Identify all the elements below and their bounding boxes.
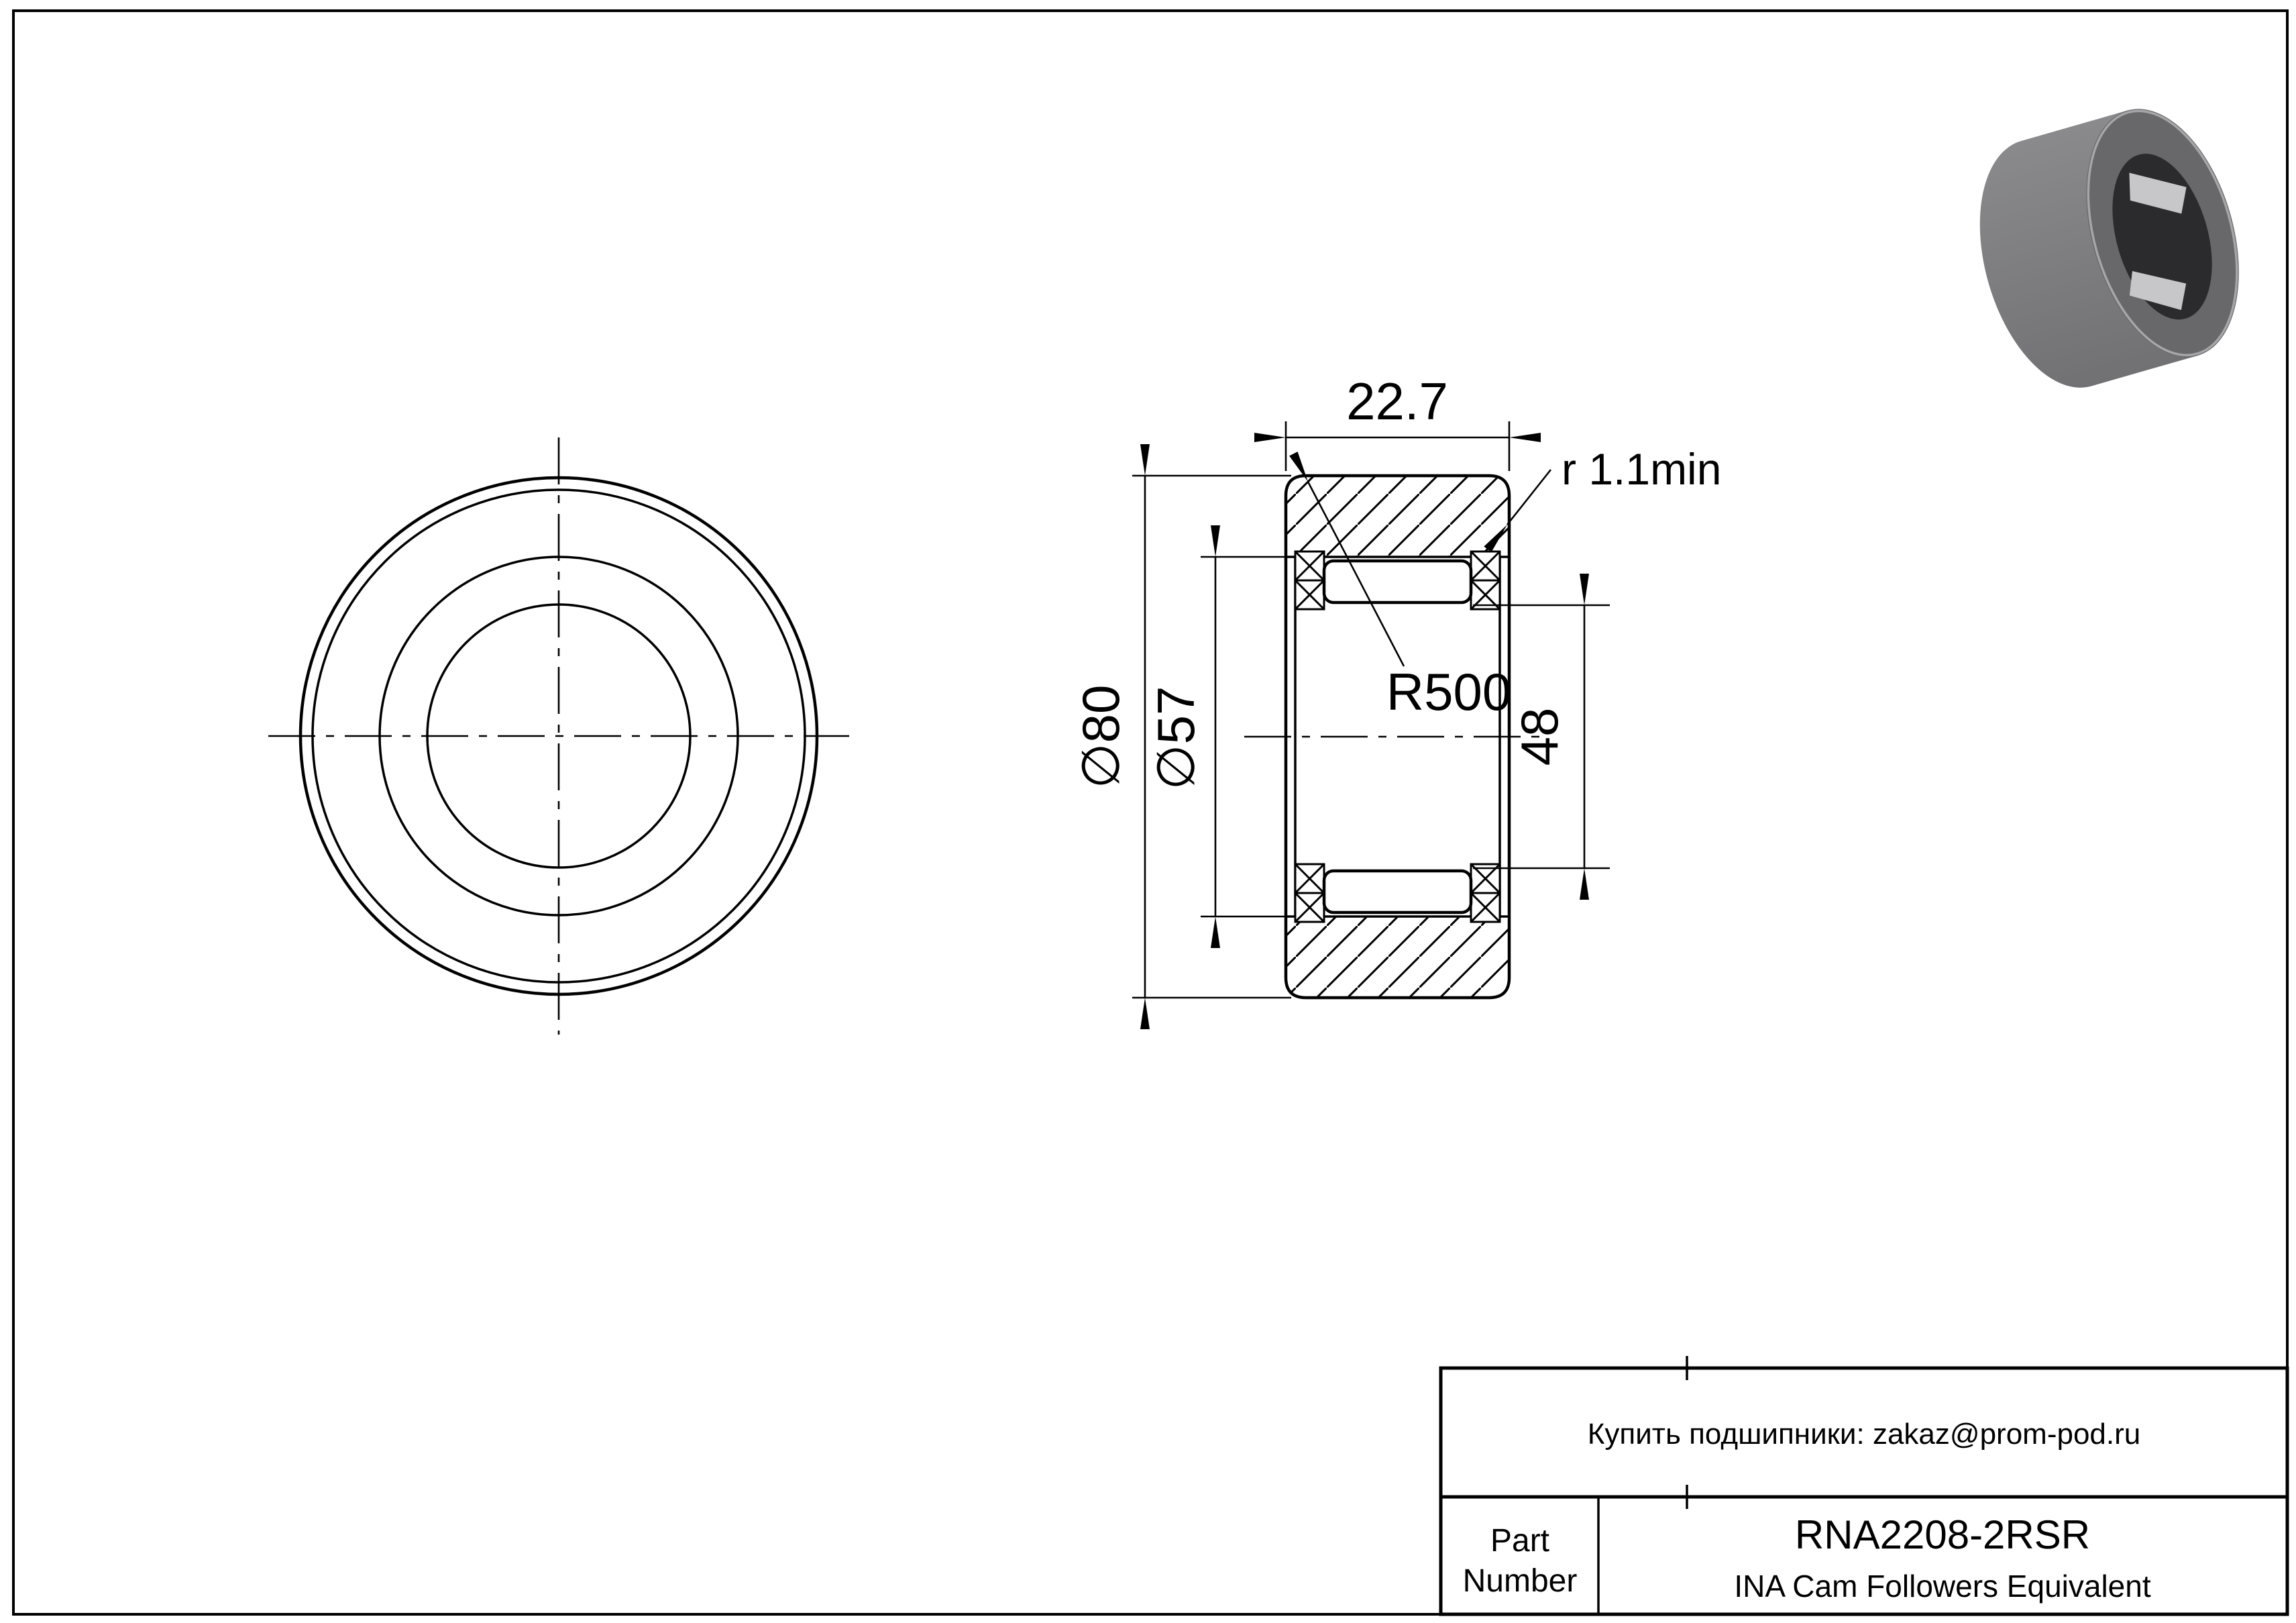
part-number-value: RNA2208-2RSR	[1795, 1512, 2090, 1557]
drawing-canvas: 22.7 ∅80 ∅57 48 R500	[0, 0, 2296, 1623]
seal-top-right	[1471, 552, 1500, 609]
part-label-line1: Part	[1490, 1523, 1549, 1559]
width-dimension-label: 22.7	[1346, 372, 1448, 431]
equivalent-text: INA Cam Followers Equivalent	[1734, 1569, 2150, 1604]
contact-text: Купить подшипники: zakaz@prom-pod.ru	[1588, 1418, 2140, 1451]
seal-top-left	[1295, 552, 1324, 609]
title-block: Купить подшипники: zakaz@prom-pod.ru Par…	[1441, 1356, 2287, 1614]
section-view	[1244, 476, 1549, 998]
outer-ring-hatch-top	[1286, 476, 1509, 557]
under-roller-diameter-label: 48	[1510, 708, 1569, 766]
outer-diameter-label: ∅80	[1071, 685, 1130, 789]
needle-roller-bottom	[1324, 871, 1471, 912]
bearing-3d-render	[1953, 91, 2265, 406]
front-view	[268, 437, 849, 1035]
dimension-corner-radius: r 1.1min	[1507, 444, 1721, 525]
seal-bottom-left	[1295, 864, 1324, 922]
corner-radius-label: r 1.1min	[1562, 444, 1721, 494]
part-label-line2: Number	[1463, 1563, 1578, 1599]
outer-ring-hatch-bottom	[1286, 917, 1509, 998]
seal-bottom-right	[1471, 864, 1500, 922]
raceway-diameter-label: ∅57	[1146, 686, 1205, 790]
crown-radius-label: R500	[1386, 662, 1511, 721]
dimension-width: 22.7	[1286, 372, 1509, 471]
needle-roller-top	[1324, 561, 1471, 603]
